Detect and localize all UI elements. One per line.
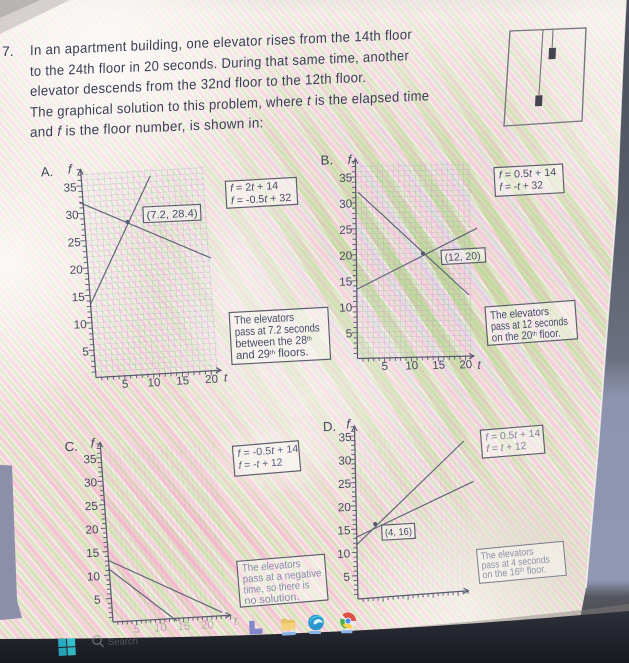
svg-text:25: 25 [338, 477, 352, 491]
svg-text:10: 10 [405, 360, 418, 373]
svg-text:Search: Search [108, 636, 138, 648]
svg-text:C.: C. [64, 439, 78, 455]
svg-text:15: 15 [432, 360, 445, 373]
svg-text:35: 35 [339, 171, 353, 185]
svg-text:20: 20 [69, 263, 83, 277]
svg-text:35: 35 [63, 181, 77, 195]
svg-text:(4, 16): (4, 16) [385, 526, 413, 539]
svg-text:25: 25 [339, 223, 353, 237]
svg-text:f: f [346, 417, 351, 431]
svg-text:5: 5 [381, 361, 388, 373]
svg-text:B.: B. [320, 152, 333, 168]
svg-text:15: 15 [71, 291, 85, 305]
svg-text:10: 10 [339, 301, 353, 315]
svg-text:f: f [68, 163, 73, 177]
svg-text:f: f [348, 153, 353, 167]
svg-text:35: 35 [338, 431, 352, 445]
svg-text:15: 15 [86, 547, 100, 561]
svg-text:10: 10 [147, 377, 160, 390]
svg-text:25: 25 [85, 500, 99, 514]
svg-text:15: 15 [339, 275, 353, 289]
svg-text:(7.2, 28.4): (7.2, 28.4) [146, 208, 197, 222]
svg-text:25: 25 [67, 236, 81, 250]
svg-text:30: 30 [84, 476, 98, 490]
svg-text:15: 15 [337, 524, 351, 538]
svg-text:5: 5 [122, 379, 129, 391]
svg-text:f: f [91, 437, 96, 451]
svg-text:20: 20 [205, 374, 218, 387]
svg-text:f = -t + 32: f = -t + 32 [499, 179, 543, 193]
svg-text:30: 30 [65, 209, 79, 223]
svg-text:30: 30 [338, 454, 352, 468]
svg-text:20: 20 [459, 359, 472, 372]
svg-text:35: 35 [83, 453, 97, 467]
svg-text:10: 10 [73, 318, 87, 332]
svg-text:t: t [478, 360, 482, 372]
svg-text:10: 10 [87, 570, 101, 584]
svg-text:15: 15 [176, 375, 189, 388]
svg-text:30: 30 [339, 197, 353, 211]
svg-text:20: 20 [338, 501, 352, 515]
svg-text:10: 10 [337, 547, 351, 561]
svg-text:20: 20 [339, 249, 353, 263]
svg-text:D.: D. [323, 419, 337, 435]
svg-text:5: 5 [345, 327, 353, 340]
svg-text:t: t [224, 373, 228, 385]
svg-text:5: 5 [82, 345, 90, 358]
svg-text:20: 20 [85, 523, 99, 537]
svg-text:(12, 20): (12, 20) [444, 251, 481, 264]
svg-text:A.: A. [40, 164, 53, 180]
svg-text:5: 5 [343, 571, 351, 584]
